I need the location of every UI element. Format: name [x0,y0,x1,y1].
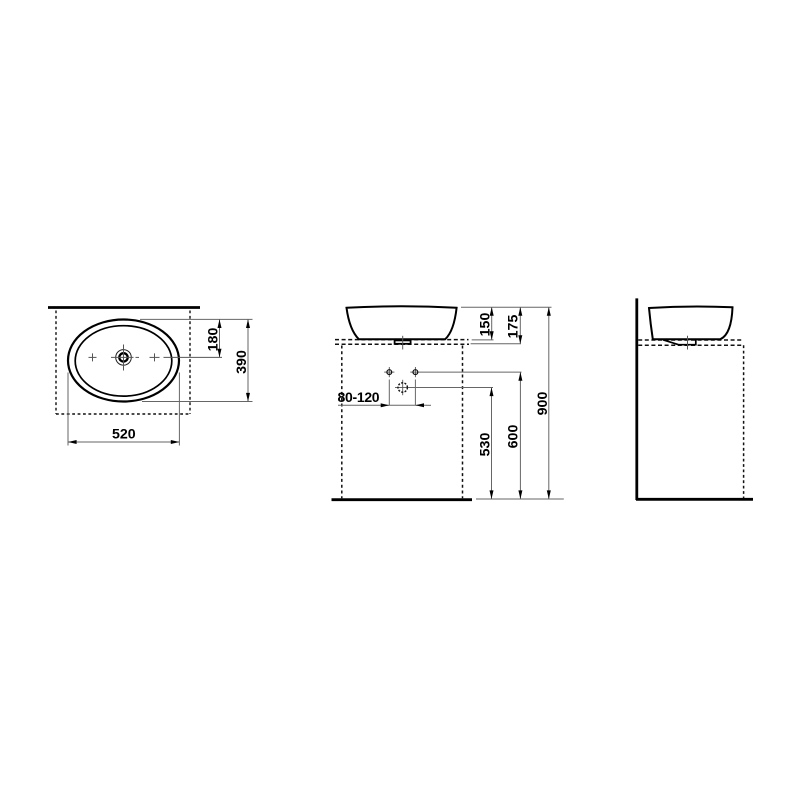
svg-text:900: 900 [535,392,551,416]
svg-text:600: 600 [506,425,522,449]
svg-text:175: 175 [506,315,522,339]
svg-text:180: 180 [205,328,221,352]
svg-text:520: 520 [112,427,136,443]
svg-text:530: 530 [477,433,493,457]
svg-text:390: 390 [234,350,250,374]
svg-text:150: 150 [477,313,493,337]
svg-text:80-120: 80-120 [338,389,380,405]
